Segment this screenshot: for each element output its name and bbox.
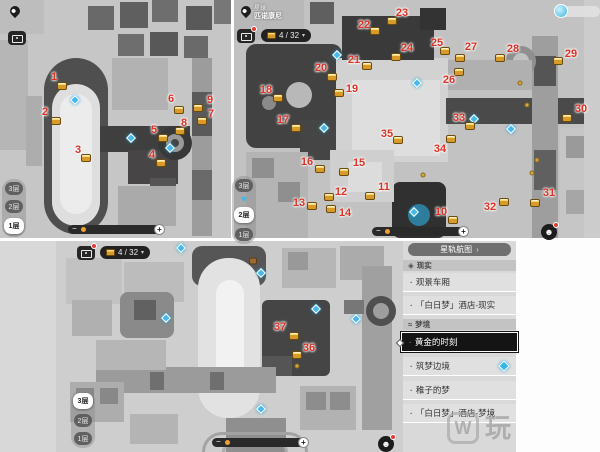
map-item-label: 稚子的梦 — [416, 384, 450, 396]
marker-number: 19 — [346, 83, 358, 95]
teleport-anchor-icon[interactable] — [506, 124, 516, 134]
teleport-anchor-icon[interactable] — [70, 95, 80, 105]
floor-selector[interactable]: 3层 2层 1层 — [232, 176, 256, 244]
treasure-chest-icon[interactable] — [455, 54, 465, 62]
marker-number: 14 — [339, 207, 351, 219]
marker-number: 34 — [434, 143, 446, 155]
chevron-right-icon: › — [476, 245, 479, 254]
treasure-chest-icon[interactable] — [365, 192, 375, 200]
caret-down-icon: ▾ — [141, 249, 144, 256]
chest-counter-value: 4 / 32 — [279, 31, 299, 40]
treasure-chest-icon[interactable] — [292, 351, 302, 359]
small-marker-icon — [518, 81, 523, 86]
teleport-anchor-icon[interactable] — [319, 123, 329, 133]
marker-number: 35 — [381, 128, 393, 140]
teleport-anchor-icon[interactable] — [332, 50, 342, 60]
floor-selector[interactable]: 3层 2层 1层 — [71, 390, 95, 448]
teleport-anchor-icon[interactable] — [161, 313, 171, 323]
notification-badge — [390, 434, 396, 440]
marker-number: 36 — [303, 342, 315, 354]
treasure-chest-icon[interactable] — [81, 154, 91, 162]
marker-number: 5 — [151, 124, 157, 136]
chest-icon — [267, 32, 276, 39]
teleport-anchor-icon[interactable] — [126, 133, 136, 143]
teleport-anchor-icon[interactable] — [176, 243, 186, 253]
chest-counter[interactable]: 4 / 32 ▾ — [100, 246, 150, 259]
marker-filter-button[interactable] — [8, 31, 26, 45]
map-item-observation-car[interactable]: · 观景车厢 — [403, 273, 516, 292]
small-marker-icon — [535, 158, 540, 163]
marker-number: 29 — [565, 48, 577, 60]
treasure-chest-icon[interactable] — [448, 216, 458, 224]
marker-number: 2 — [42, 106, 48, 118]
teleport-anchor-icon[interactable] — [165, 143, 175, 153]
orb-icon — [554, 4, 568, 18]
map-item-golden-hour[interactable]: · 黄金的时刻 — [401, 332, 518, 352]
floor-3-button[interactable]: 3层 — [235, 179, 253, 192]
treasure-chest-icon[interactable] — [57, 82, 67, 90]
marker-number: 17 — [277, 114, 289, 126]
treasure-chest-icon[interactable] — [393, 136, 403, 144]
bullet-icon: · — [410, 300, 413, 310]
small-marker-icon — [421, 173, 426, 178]
treasure-chest-icon[interactable] — [197, 117, 207, 125]
bullet-icon: · — [410, 361, 413, 371]
marker-number: 23 — [396, 7, 408, 19]
marker-number: 26 — [443, 74, 455, 86]
treasure-chest-icon[interactable] — [51, 117, 61, 125]
chest-icon — [106, 249, 115, 256]
treasure-chest-icon[interactable] — [158, 134, 168, 142]
treasure-chest-icon[interactable] — [495, 54, 505, 62]
zoom-slider[interactable]: − + — [372, 227, 468, 236]
marker-number: 33 — [453, 112, 465, 124]
teleport-anchor-icon[interactable] — [311, 304, 321, 314]
player-floor-indicator — [241, 197, 247, 202]
watermark-logo-icon: W — [447, 412, 479, 444]
treasure-chest-icon[interactable] — [315, 165, 325, 173]
face-icon: ☻ — [544, 227, 553, 237]
treasure-chest-icon[interactable] — [327, 73, 337, 81]
watermark-text: 玩 — [485, 412, 511, 444]
marker-number: 13 — [293, 197, 305, 209]
zoom-in-icon[interactable]: + — [154, 224, 165, 235]
notification-badge — [91, 243, 97, 249]
floor-2-button[interactable]: 2层 — [5, 200, 23, 213]
treasure-chest-icon[interactable] — [530, 199, 540, 207]
treasure-chest-icon[interactable] — [339, 168, 349, 176]
treasure-chest-icon[interactable] — [562, 114, 572, 122]
bullet-icon: · — [410, 385, 413, 395]
marker-number: 3 — [75, 144, 81, 156]
marker-number: 9 — [207, 94, 213, 106]
floor-3-button[interactable]: 3层 — [73, 393, 93, 409]
treasure-chest-icon[interactable] — [334, 89, 344, 97]
small-marker-icon — [525, 103, 530, 108]
marker-number: 8 — [181, 117, 187, 129]
section-dreamscape: ≈ 梦境 — [403, 319, 516, 330]
caret-down-icon: ▾ — [302, 32, 305, 39]
treasure-chest-icon[interactable] — [307, 202, 317, 210]
map-item-childs-dream[interactable]: · 稚子的梦 — [403, 381, 516, 400]
map-screenshot-collage: 星球 匹诺康尼 4 / 32 ▾ 4 / 32 ▾ 3层 2层 1层 3层 2层… — [0, 0, 600, 452]
marker-number: 6 — [168, 93, 174, 105]
zoom-out-icon[interactable]: − — [376, 226, 381, 236]
zoom-slider-knob[interactable] — [81, 227, 86, 232]
chest-counter[interactable]: 4 / 32 ▾ — [261, 29, 311, 42]
marker-number: 31 — [543, 187, 555, 199]
map-item-label: 观景车厢 — [416, 276, 450, 288]
section-reality: ◈ 现实 — [403, 260, 516, 271]
creature-icon — [249, 258, 257, 265]
map-item-dreamflux-reef[interactable]: · 筑梦边境 — [403, 357, 516, 376]
treasure-chest-icon[interactable] — [273, 94, 283, 102]
section-title: 梦境 — [415, 319, 430, 330]
chest-counter-value: 4 / 32 — [118, 248, 138, 257]
zoom-out-icon[interactable]: − — [216, 437, 221, 447]
marker-number: 18 — [260, 84, 272, 96]
marker-number: 37 — [274, 321, 286, 333]
marker-number: 32 — [484, 201, 496, 213]
marker-number: 25 — [431, 37, 443, 49]
bullet-icon: · — [409, 337, 412, 347]
treasure-chest-icon[interactable] — [370, 27, 380, 35]
floor-2-button[interactable]: 2层 — [74, 414, 92, 427]
marker-number: 21 — [348, 54, 360, 66]
watermark: W 玩 — [447, 412, 511, 444]
floor-1-button[interactable]: 1层 — [4, 218, 24, 234]
treasure-chest-icon[interactable] — [553, 57, 563, 65]
treasure-chest-icon[interactable] — [193, 104, 203, 112]
treasure-chest-icon[interactable] — [324, 193, 334, 201]
floor-1-button[interactable]: 1层 — [235, 228, 253, 241]
floor-1-button[interactable]: 1层 — [74, 432, 92, 445]
map-item-label: 黄金的时刻 — [415, 336, 458, 348]
teleport-anchor-icon[interactable] — [256, 268, 266, 278]
small-marker-icon — [530, 171, 535, 176]
zoom-slider-knob[interactable] — [225, 440, 230, 445]
dream-icon: ≈ — [408, 320, 412, 329]
player-locator-icon — [498, 360, 509, 371]
marker-number: 30 — [575, 103, 587, 115]
marker-number: 4 — [149, 149, 155, 161]
teleport-anchor-icon[interactable] — [256, 404, 266, 414]
small-marker-icon — [295, 364, 300, 369]
location-name: 匹诺康尼 — [254, 11, 282, 21]
marker-number: 12 — [335, 186, 347, 198]
treasure-chest-icon[interactable] — [291, 124, 301, 132]
zoom-slider[interactable]: − + — [68, 225, 164, 234]
treasure-chest-icon[interactable] — [446, 135, 456, 143]
reality-icon: ◈ — [408, 261, 414, 270]
map-item-label: 筑梦边境 — [416, 360, 450, 372]
marker-number: 20 — [315, 62, 327, 74]
treasure-chest-icon[interactable] — [454, 68, 464, 76]
bullet-icon: · — [410, 408, 413, 418]
nav-map-label: 星轨航图 — [440, 244, 472, 255]
marker-number: 11 — [378, 181, 390, 193]
teleport-anchor-icon[interactable] — [409, 207, 419, 217]
treasure-chest-icon[interactable] — [362, 62, 372, 70]
marker-number: 22 — [358, 19, 370, 31]
map-item-reverie-hotel-reality[interactable]: · 「白日梦」酒店-现实 — [403, 296, 516, 315]
map-item-label: 「白日梦」酒店-现实 — [416, 299, 495, 311]
nav-map-button[interactable]: 星轨航图 › — [408, 243, 511, 256]
marker-number: 24 — [401, 42, 413, 54]
marker-number: 28 — [507, 43, 519, 55]
section-title: 现实 — [417, 260, 432, 271]
bullet-icon: · — [410, 277, 413, 287]
zoom-in-icon[interactable]: + — [298, 437, 309, 448]
treasure-chest-icon[interactable] — [289, 332, 299, 340]
treasure-chest-icon[interactable] — [326, 205, 336, 213]
zoom-slider-knob[interactable] — [385, 229, 390, 234]
teleport-anchor-icon[interactable] — [412, 78, 422, 88]
face-icon: ☻ — [381, 439, 390, 449]
zoom-out-icon[interactable]: − — [72, 224, 77, 234]
treasure-chest-icon[interactable] — [156, 159, 166, 167]
treasure-chest-icon[interactable] — [499, 198, 509, 206]
floor-3-button[interactable]: 3层 — [5, 182, 23, 195]
teleport-anchor-icon[interactable] — [351, 314, 361, 324]
resource-widget — [558, 6, 600, 17]
notification-badge — [251, 26, 257, 32]
treasure-chest-icon[interactable] — [174, 106, 184, 114]
floor-selector[interactable]: 3层 2层 1层 — [2, 179, 26, 237]
marker-number: 15 — [353, 157, 365, 169]
marker-number: 16 — [301, 156, 313, 168]
marker-number: 7 — [208, 108, 214, 120]
zoom-in-icon[interactable]: + — [458, 226, 469, 237]
floor-2-button[interactable]: 2层 — [234, 207, 254, 223]
zoom-slider[interactable]: − + — [212, 438, 308, 447]
marker-number: 1 — [51, 71, 57, 83]
marker-number: 27 — [465, 41, 477, 53]
marker-number: 10 — [435, 206, 447, 218]
treasure-chest-icon[interactable] — [465, 122, 475, 130]
notification-badge — [553, 222, 559, 228]
treasure-chest-icon[interactable] — [391, 53, 401, 61]
